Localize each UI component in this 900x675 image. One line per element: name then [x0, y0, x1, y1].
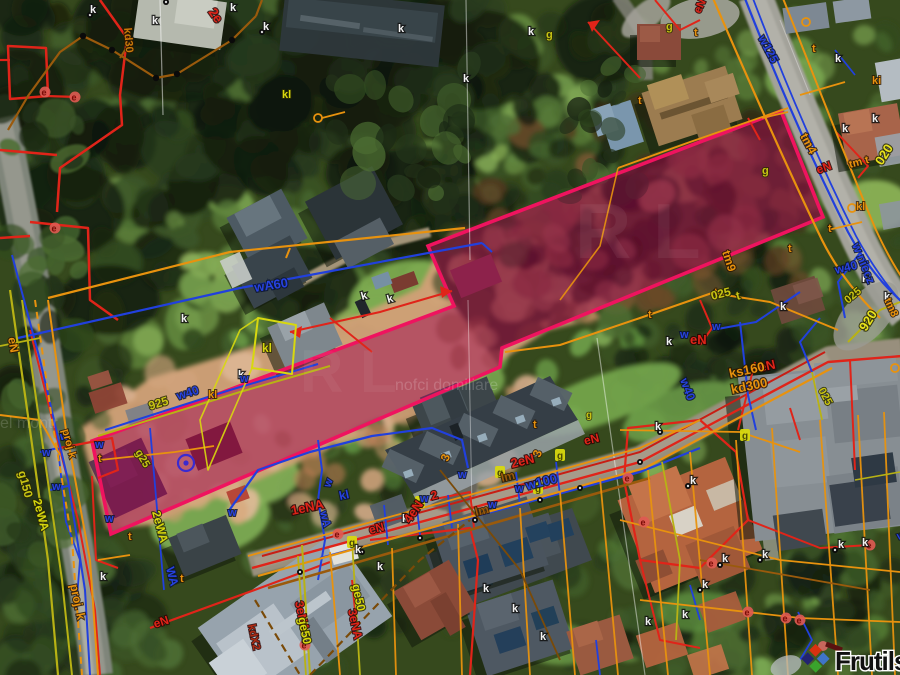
svg-text:k: k [181, 313, 188, 325]
svg-text:k: k [483, 583, 490, 595]
svg-text:w: w [239, 373, 249, 385]
svg-text:k: k [655, 421, 662, 433]
svg-text:k: k [90, 4, 97, 16]
svg-text:e: e [625, 474, 630, 484]
svg-text:kd30: kd30 [121, 27, 135, 53]
svg-text:k: k [398, 23, 405, 35]
svg-text:k: k [762, 549, 769, 561]
svg-text:t: t [812, 43, 816, 55]
svg-text:k: k [230, 2, 237, 14]
svg-text:R L: R L [575, 187, 701, 275]
svg-text:g: g [742, 431, 748, 442]
svg-text:eN: eN [690, 332, 707, 347]
svg-text:t: t [98, 453, 102, 465]
svg-text:t: t [648, 309, 652, 321]
svg-text:k: k [780, 301, 787, 313]
svg-text:e: e [745, 608, 750, 618]
svg-text:e: e [783, 614, 788, 624]
svg-text:w: w [227, 507, 237, 519]
svg-text:e: e [335, 530, 340, 540]
svg-text:k: k [528, 26, 535, 38]
svg-text:k: k [872, 113, 879, 125]
svg-text:k: k [463, 73, 470, 85]
svg-text:e: e [709, 559, 714, 569]
svg-text:g: g [666, 21, 673, 33]
svg-text:Frutils: Frutils [835, 646, 900, 675]
svg-text:k: k [842, 123, 849, 135]
svg-text:ki: ki [872, 75, 881, 87]
svg-text:t: t [828, 223, 832, 235]
svg-text:k: k [682, 609, 689, 621]
svg-text:k: k [645, 616, 652, 628]
svg-text:k: k [835, 53, 842, 65]
svg-text:t: t [788, 243, 792, 255]
svg-text:k: k [666, 336, 673, 348]
svg-text:k: k [722, 553, 729, 565]
svg-text:el montr: el montr [0, 415, 58, 432]
svg-text:k: k [540, 631, 547, 643]
svg-text:kl: kl [856, 201, 865, 213]
svg-text:e: e [72, 93, 77, 103]
svg-text:kl: kl [208, 389, 217, 401]
svg-text:k: k [690, 475, 697, 487]
svg-text:w: w [104, 513, 114, 525]
svg-text:k: k [355, 544, 362, 556]
svg-text:g: g [557, 451, 563, 462]
svg-text:g: g [546, 29, 553, 41]
svg-text:w: w [514, 483, 524, 495]
svg-text:w: w [41, 447, 51, 459]
svg-text:g: g [586, 410, 592, 421]
svg-text:w: w [679, 329, 689, 341]
svg-text:k: k [377, 561, 384, 573]
svg-text:k: k [263, 21, 270, 33]
svg-text:kl: kl [282, 89, 291, 101]
svg-text:k: k [100, 571, 107, 583]
svg-text:t: t [128, 531, 132, 543]
svg-text:t: t [694, 27, 698, 39]
svg-text:k: k [152, 15, 159, 27]
svg-text:eN: eN [5, 336, 21, 354]
svg-text:w: w [51, 481, 61, 493]
svg-text:e: e [797, 616, 802, 626]
svg-text:w: w [711, 321, 721, 333]
svg-text:R L: R L [300, 338, 397, 405]
svg-text:e: e [42, 88, 47, 98]
svg-text:t: t [180, 573, 184, 585]
svg-text:k: k [512, 603, 519, 615]
svg-text:w: w [457, 469, 467, 481]
svg-text:k: k [702, 579, 709, 591]
svg-text:k: k [862, 537, 869, 549]
svg-text:e: e [641, 518, 646, 528]
svg-text:kl: kl [262, 341, 272, 355]
svg-text:t: t [638, 95, 642, 107]
svg-text:t: t [533, 419, 537, 431]
svg-text:w: w [94, 439, 104, 451]
svg-text:k: k [838, 539, 845, 551]
svg-text:nofci domiliare: nofci domiliare [395, 377, 498, 394]
svg-text:e: e [52, 224, 57, 234]
svg-text:g: g [762, 165, 769, 177]
